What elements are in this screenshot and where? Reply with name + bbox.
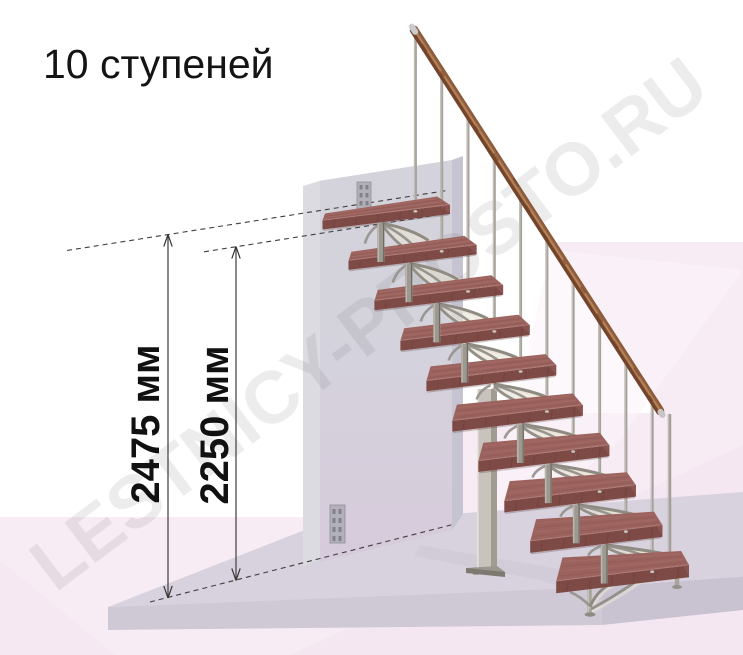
svg-text:2250 мм: 2250 мм: [193, 345, 237, 504]
svg-text:10 ступеней: 10 ступеней: [43, 41, 274, 87]
svg-text:2475 мм: 2475 мм: [124, 344, 168, 503]
